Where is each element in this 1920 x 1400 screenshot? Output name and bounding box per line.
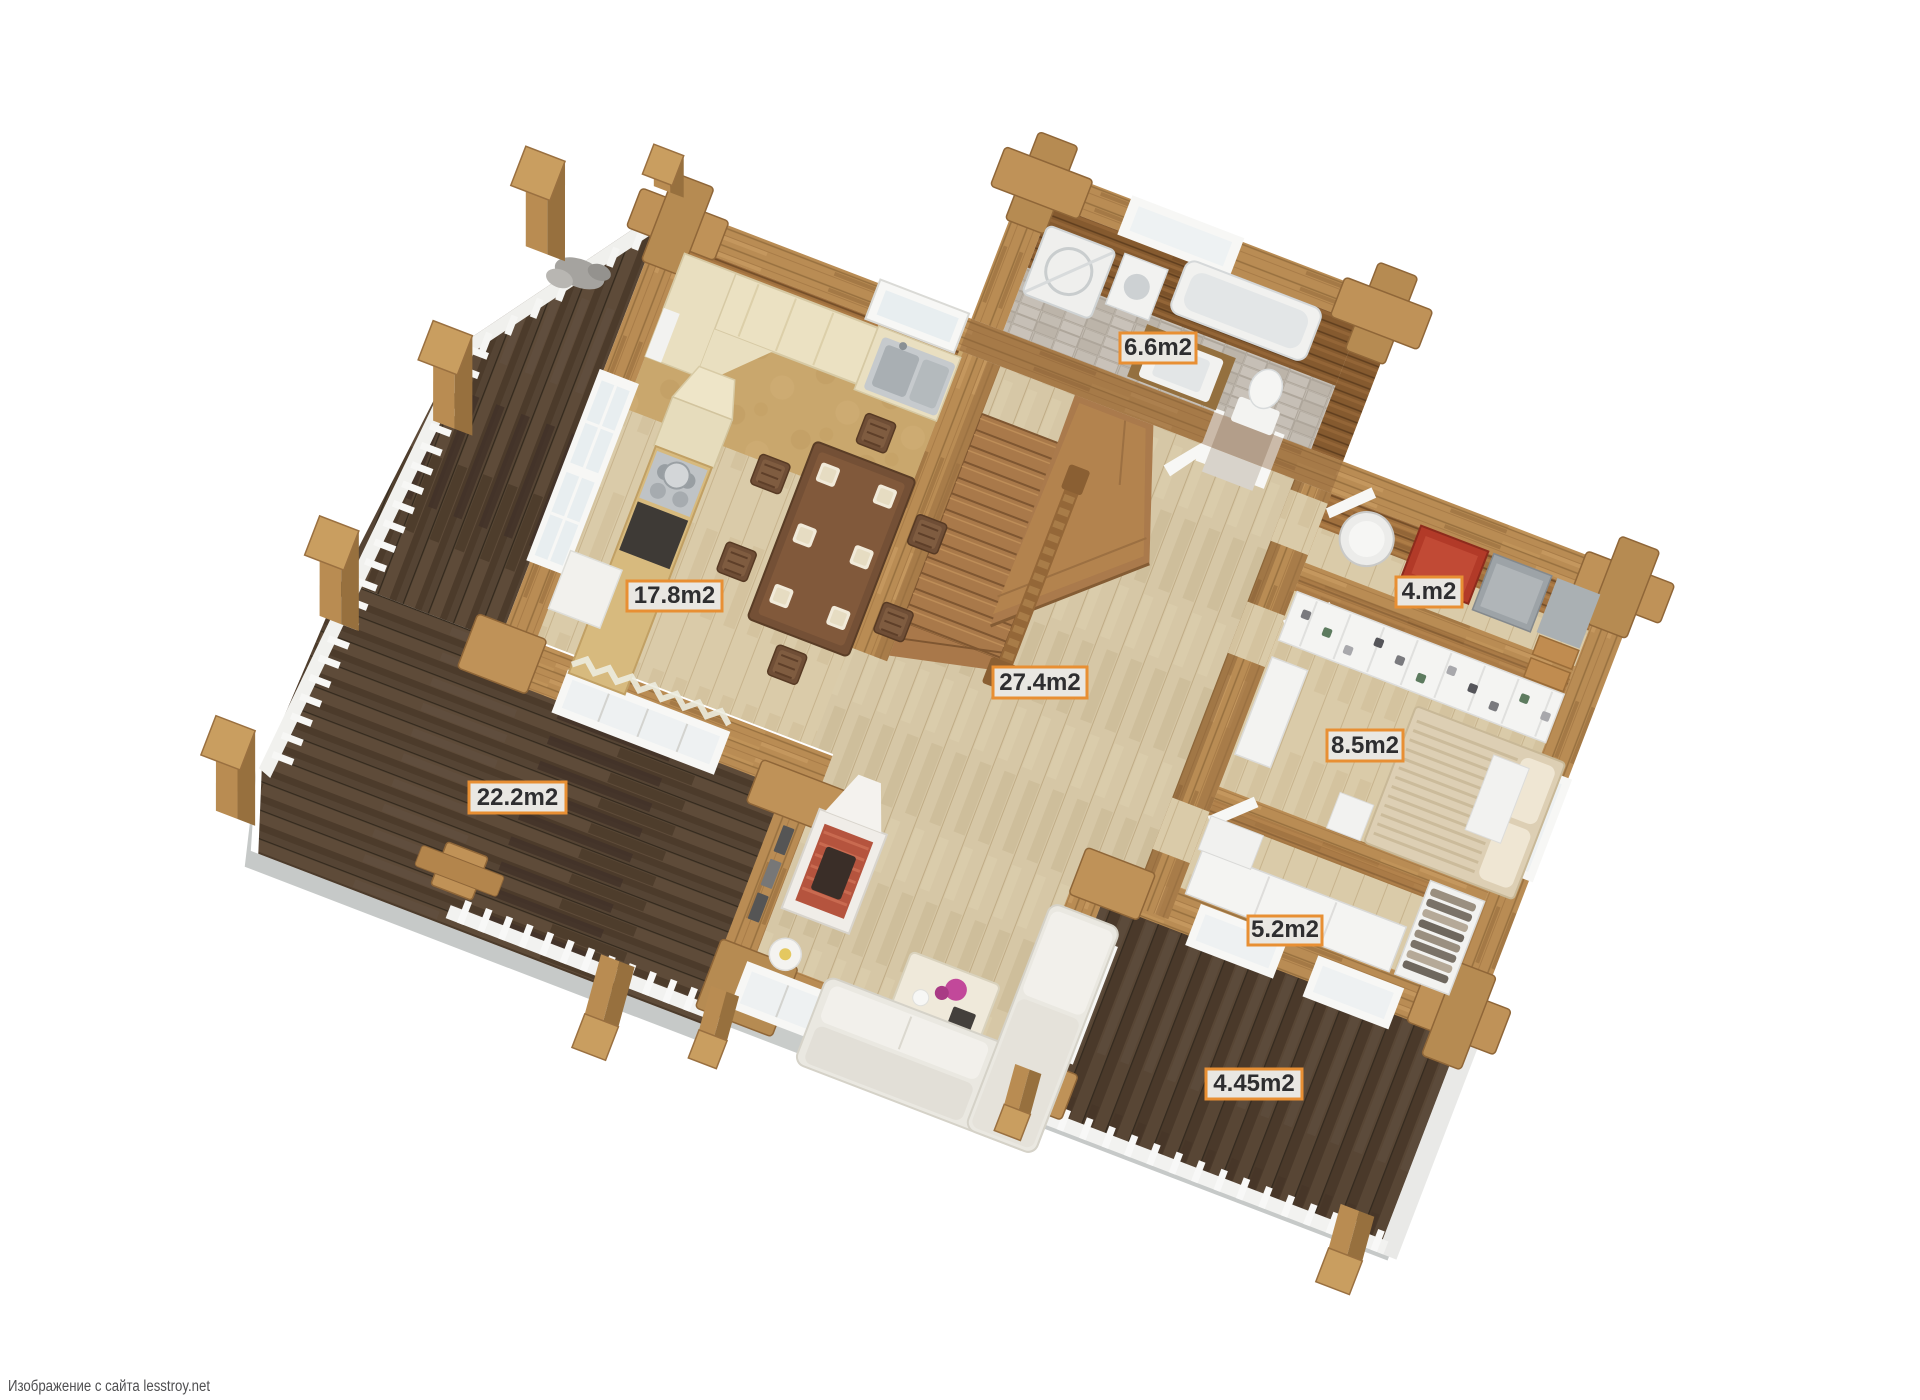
svg-text:Изображение с сайта lesstroy.n: Изображение с сайта lesstroy.net: [8, 1378, 211, 1395]
svg-text:22.2m2: 22.2m2: [477, 784, 558, 811]
svg-text:27.4m2: 27.4m2: [999, 669, 1080, 696]
svg-text:5.2m2: 5.2m2: [1251, 916, 1319, 943]
svg-text:4.m2: 4.m2: [1402, 578, 1457, 605]
svg-text:8.5m2: 8.5m2: [1331, 732, 1399, 759]
svg-text:4.45m2: 4.45m2: [1213, 1070, 1294, 1097]
svg-text:6.6m2: 6.6m2: [1124, 334, 1192, 361]
svg-text:17.8m2: 17.8m2: [634, 582, 715, 609]
